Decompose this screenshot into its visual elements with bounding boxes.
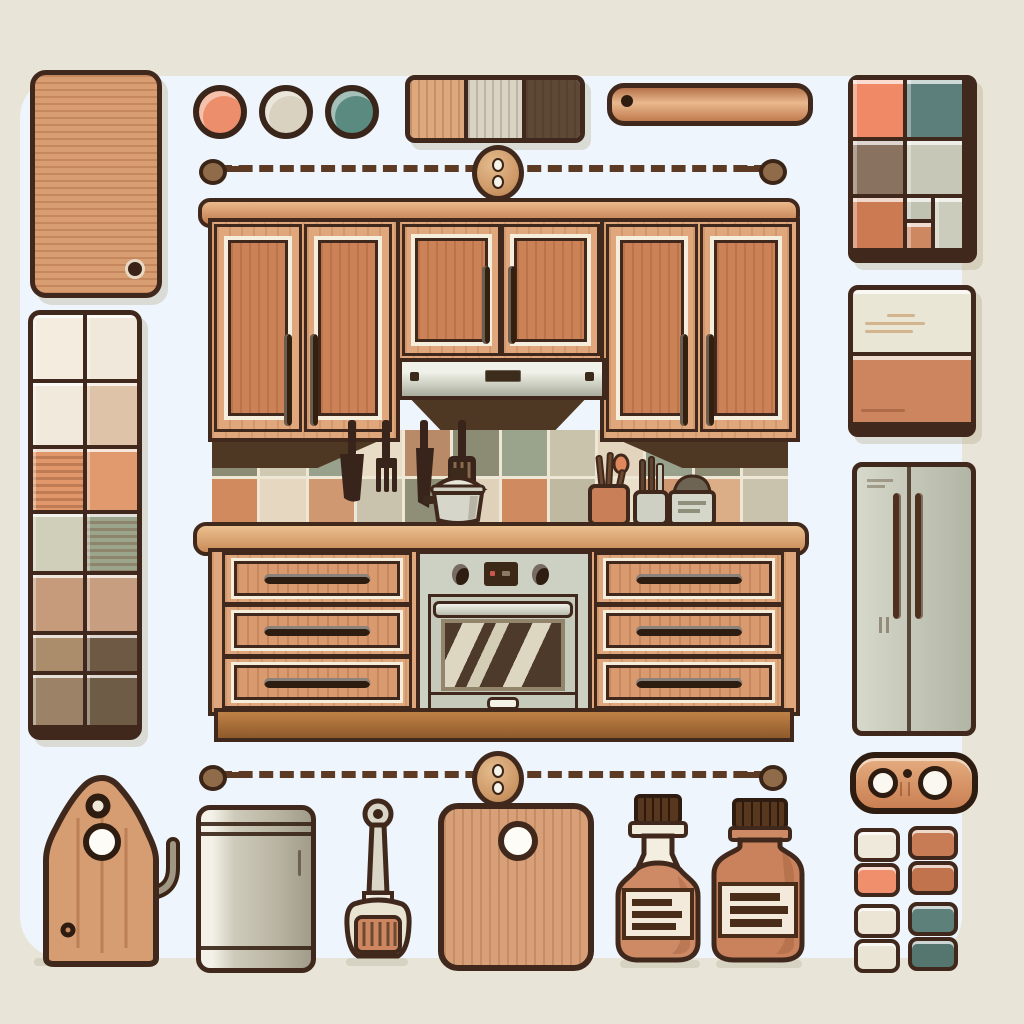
fridge-divider	[907, 467, 911, 731]
grid-swatch	[935, 198, 962, 248]
drawer	[222, 604, 412, 657]
mini-swatch	[908, 826, 958, 860]
mini-swatch-stack-left	[854, 828, 900, 974]
board-hole-icon	[498, 821, 538, 861]
oven	[416, 550, 592, 714]
drawer-handle	[636, 626, 742, 636]
range-hood	[398, 358, 606, 400]
hood-button	[410, 372, 419, 381]
jar-icon-large	[710, 794, 806, 964]
stitch-line-top	[202, 156, 784, 180]
drawer	[594, 552, 784, 605]
kitchen-design-moodboard: { "scene": { "background_color": "#e8e5d…	[0, 0, 1024, 1024]
drawer-handle	[636, 574, 742, 584]
bracket-dot-icon	[903, 769, 912, 778]
tile-swatch	[87, 635, 137, 671]
mini-swatch	[908, 902, 958, 936]
tile-swatch	[743, 479, 788, 525]
upper-cabinet-right	[600, 218, 800, 442]
bottle-icon-small	[614, 794, 702, 964]
drawer	[594, 604, 784, 657]
door-handle	[284, 334, 292, 426]
line-end-dot	[759, 159, 787, 185]
sewing-button-icon	[472, 751, 524, 807]
wood-finish-strip	[405, 75, 585, 143]
fabric-swatch-terracotta	[853, 356, 971, 422]
tile-swatch	[33, 635, 83, 671]
bracket-hole-icon	[918, 766, 952, 800]
grid-swatch	[907, 198, 931, 219]
mini-swatch	[908, 861, 958, 895]
door-handle	[482, 266, 490, 344]
palette-dot-teal	[325, 85, 379, 139]
tile-swatch-column	[28, 310, 142, 740]
hood-button	[585, 372, 594, 381]
tile-swatch	[33, 383, 83, 445]
line-end-dot	[759, 765, 787, 791]
tile-swatch	[33, 575, 83, 631]
drawer	[222, 552, 412, 605]
drawer-handle	[264, 574, 370, 584]
grid-swatch	[907, 80, 962, 137]
scoop-brush-icon	[342, 798, 414, 964]
door-handle	[310, 334, 318, 426]
palette-dot-salmon	[193, 85, 247, 139]
bracket-hole-icon	[868, 768, 898, 798]
tile-swatch	[33, 514, 83, 571]
tile-swatch	[33, 315, 83, 379]
tile-swatch	[87, 514, 137, 571]
drawer	[594, 656, 784, 709]
door-handle	[508, 266, 516, 344]
tile-swatch	[260, 479, 305, 525]
refrigerator	[852, 462, 976, 736]
tile-swatch	[33, 449, 83, 510]
tile-swatch	[87, 675, 137, 725]
utensil-crocks-icon	[588, 448, 716, 526]
fridge-handle	[893, 493, 901, 619]
wall-bracket-icon	[850, 752, 978, 814]
toe-kick	[214, 708, 794, 742]
finish-light-oak	[410, 80, 468, 138]
tile-swatch	[502, 479, 547, 525]
grid-swatch	[853, 141, 903, 194]
sewing-button-icon	[472, 145, 524, 201]
grid-swatch	[853, 198, 903, 248]
upper-cabinet-left	[208, 218, 400, 442]
fridge-vent	[886, 617, 889, 633]
fridge-vent	[879, 617, 882, 633]
oven-window	[441, 619, 565, 691]
grid-swatch	[907, 223, 931, 248]
finish-dark-walnut	[526, 80, 580, 138]
stitch-line-bottom	[202, 762, 784, 786]
oven-display	[484, 562, 518, 586]
hook-board-icon	[26, 748, 186, 970]
finish-gray-ash	[468, 80, 526, 138]
wood-board-swatch	[30, 70, 162, 298]
fabric-swatch-cream	[853, 290, 971, 352]
canister-icon	[196, 805, 316, 973]
drawer	[222, 656, 412, 709]
fabric-swatch-panel	[848, 285, 976, 437]
tile-swatch	[212, 479, 257, 525]
grid-swatch	[907, 141, 962, 194]
tile-swatch	[87, 383, 137, 445]
drawer-handle	[264, 626, 370, 636]
material-color-grid	[848, 75, 977, 263]
grid-swatch	[853, 80, 903, 137]
cooking-pot-icon	[420, 466, 496, 526]
hood-controls	[485, 370, 521, 382]
board-hole-icon	[125, 259, 145, 279]
mini-swatch	[908, 937, 958, 971]
wooden-stick	[607, 83, 813, 126]
drawer-handle	[264, 678, 370, 688]
oven-knob	[532, 564, 549, 585]
mini-swatch	[854, 828, 900, 862]
drawer-handle	[636, 678, 742, 688]
door-handle	[706, 334, 714, 426]
line-end-dot	[199, 765, 227, 791]
tile-swatch	[87, 315, 137, 379]
tile-swatch	[87, 575, 137, 631]
tile-swatch	[87, 449, 137, 510]
tile-swatch	[33, 675, 83, 725]
palette-dot-cream	[259, 85, 313, 139]
cutting-board-icon	[438, 803, 594, 971]
mini-swatch	[854, 863, 900, 897]
door-handle	[680, 334, 688, 426]
mini-swatch-stack-right	[908, 826, 958, 972]
mini-swatch	[854, 939, 900, 973]
fridge-handle	[915, 493, 923, 619]
line-end-dot	[199, 159, 227, 185]
tile-swatch	[502, 430, 547, 476]
oven-knob	[452, 564, 469, 585]
oven-handle	[433, 601, 573, 618]
upper-cabinet-center	[396, 218, 608, 366]
mini-swatch	[854, 904, 900, 938]
oven-door	[428, 594, 578, 696]
stick-hole-icon	[621, 95, 633, 107]
